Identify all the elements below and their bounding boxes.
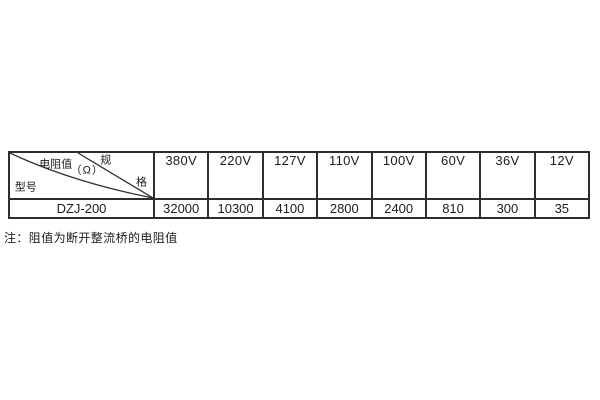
resistance-value-cell: 2800 <box>317 199 371 218</box>
voltage-header-380v: 380V <box>154 152 208 199</box>
resistance-value-cell: 2400 <box>372 199 426 218</box>
footnote: 注：阻值为断开整流桥的电阻值 <box>4 229 178 246</box>
corner-spec-label-top: 规 <box>100 155 111 166</box>
corner-model-label: 型号 <box>15 183 37 194</box>
voltage-header-100v: 100V <box>372 152 426 199</box>
header-row: 电阻值 （Ω） 型号 规 格 380V 220V 127V 110V 100V … <box>9 152 589 199</box>
resistance-value-cell: 810 <box>426 199 480 218</box>
diagonal-header-cell: 电阻值 （Ω） 型号 规 格 <box>9 152 154 199</box>
voltage-header-36v: 36V <box>480 152 534 199</box>
corner-unit-label: （Ω） <box>71 166 104 177</box>
resistance-value-cell: 10300 <box>208 199 262 218</box>
data-row-dzj200: DZJ-200 32000 10300 4100 2800 2400 810 3… <box>9 199 589 218</box>
voltage-header-127v: 127V <box>263 152 317 199</box>
corner-spec-label-bottom: 格 <box>136 177 147 188</box>
resistance-value-cell: 32000 <box>154 199 208 218</box>
voltage-header-110v: 110V <box>317 152 371 199</box>
resistance-spec-table: 电阻值 （Ω） 型号 规 格 380V 220V 127V 110V 100V … <box>8 151 590 219</box>
page: 电阻值 （Ω） 型号 规 格 380V 220V 127V 110V 100V … <box>0 0 600 400</box>
model-cell: DZJ-200 <box>9 199 154 218</box>
voltage-header-12v: 12V <box>535 152 589 199</box>
resistance-value-cell: 300 <box>480 199 534 218</box>
resistance-value-cell: 4100 <box>263 199 317 218</box>
resistance-value-cell: 35 <box>535 199 589 218</box>
voltage-header-60v: 60V <box>426 152 480 199</box>
corner-value-label: 电阻值 <box>39 159 72 170</box>
voltage-header-220v: 220V <box>208 152 262 199</box>
